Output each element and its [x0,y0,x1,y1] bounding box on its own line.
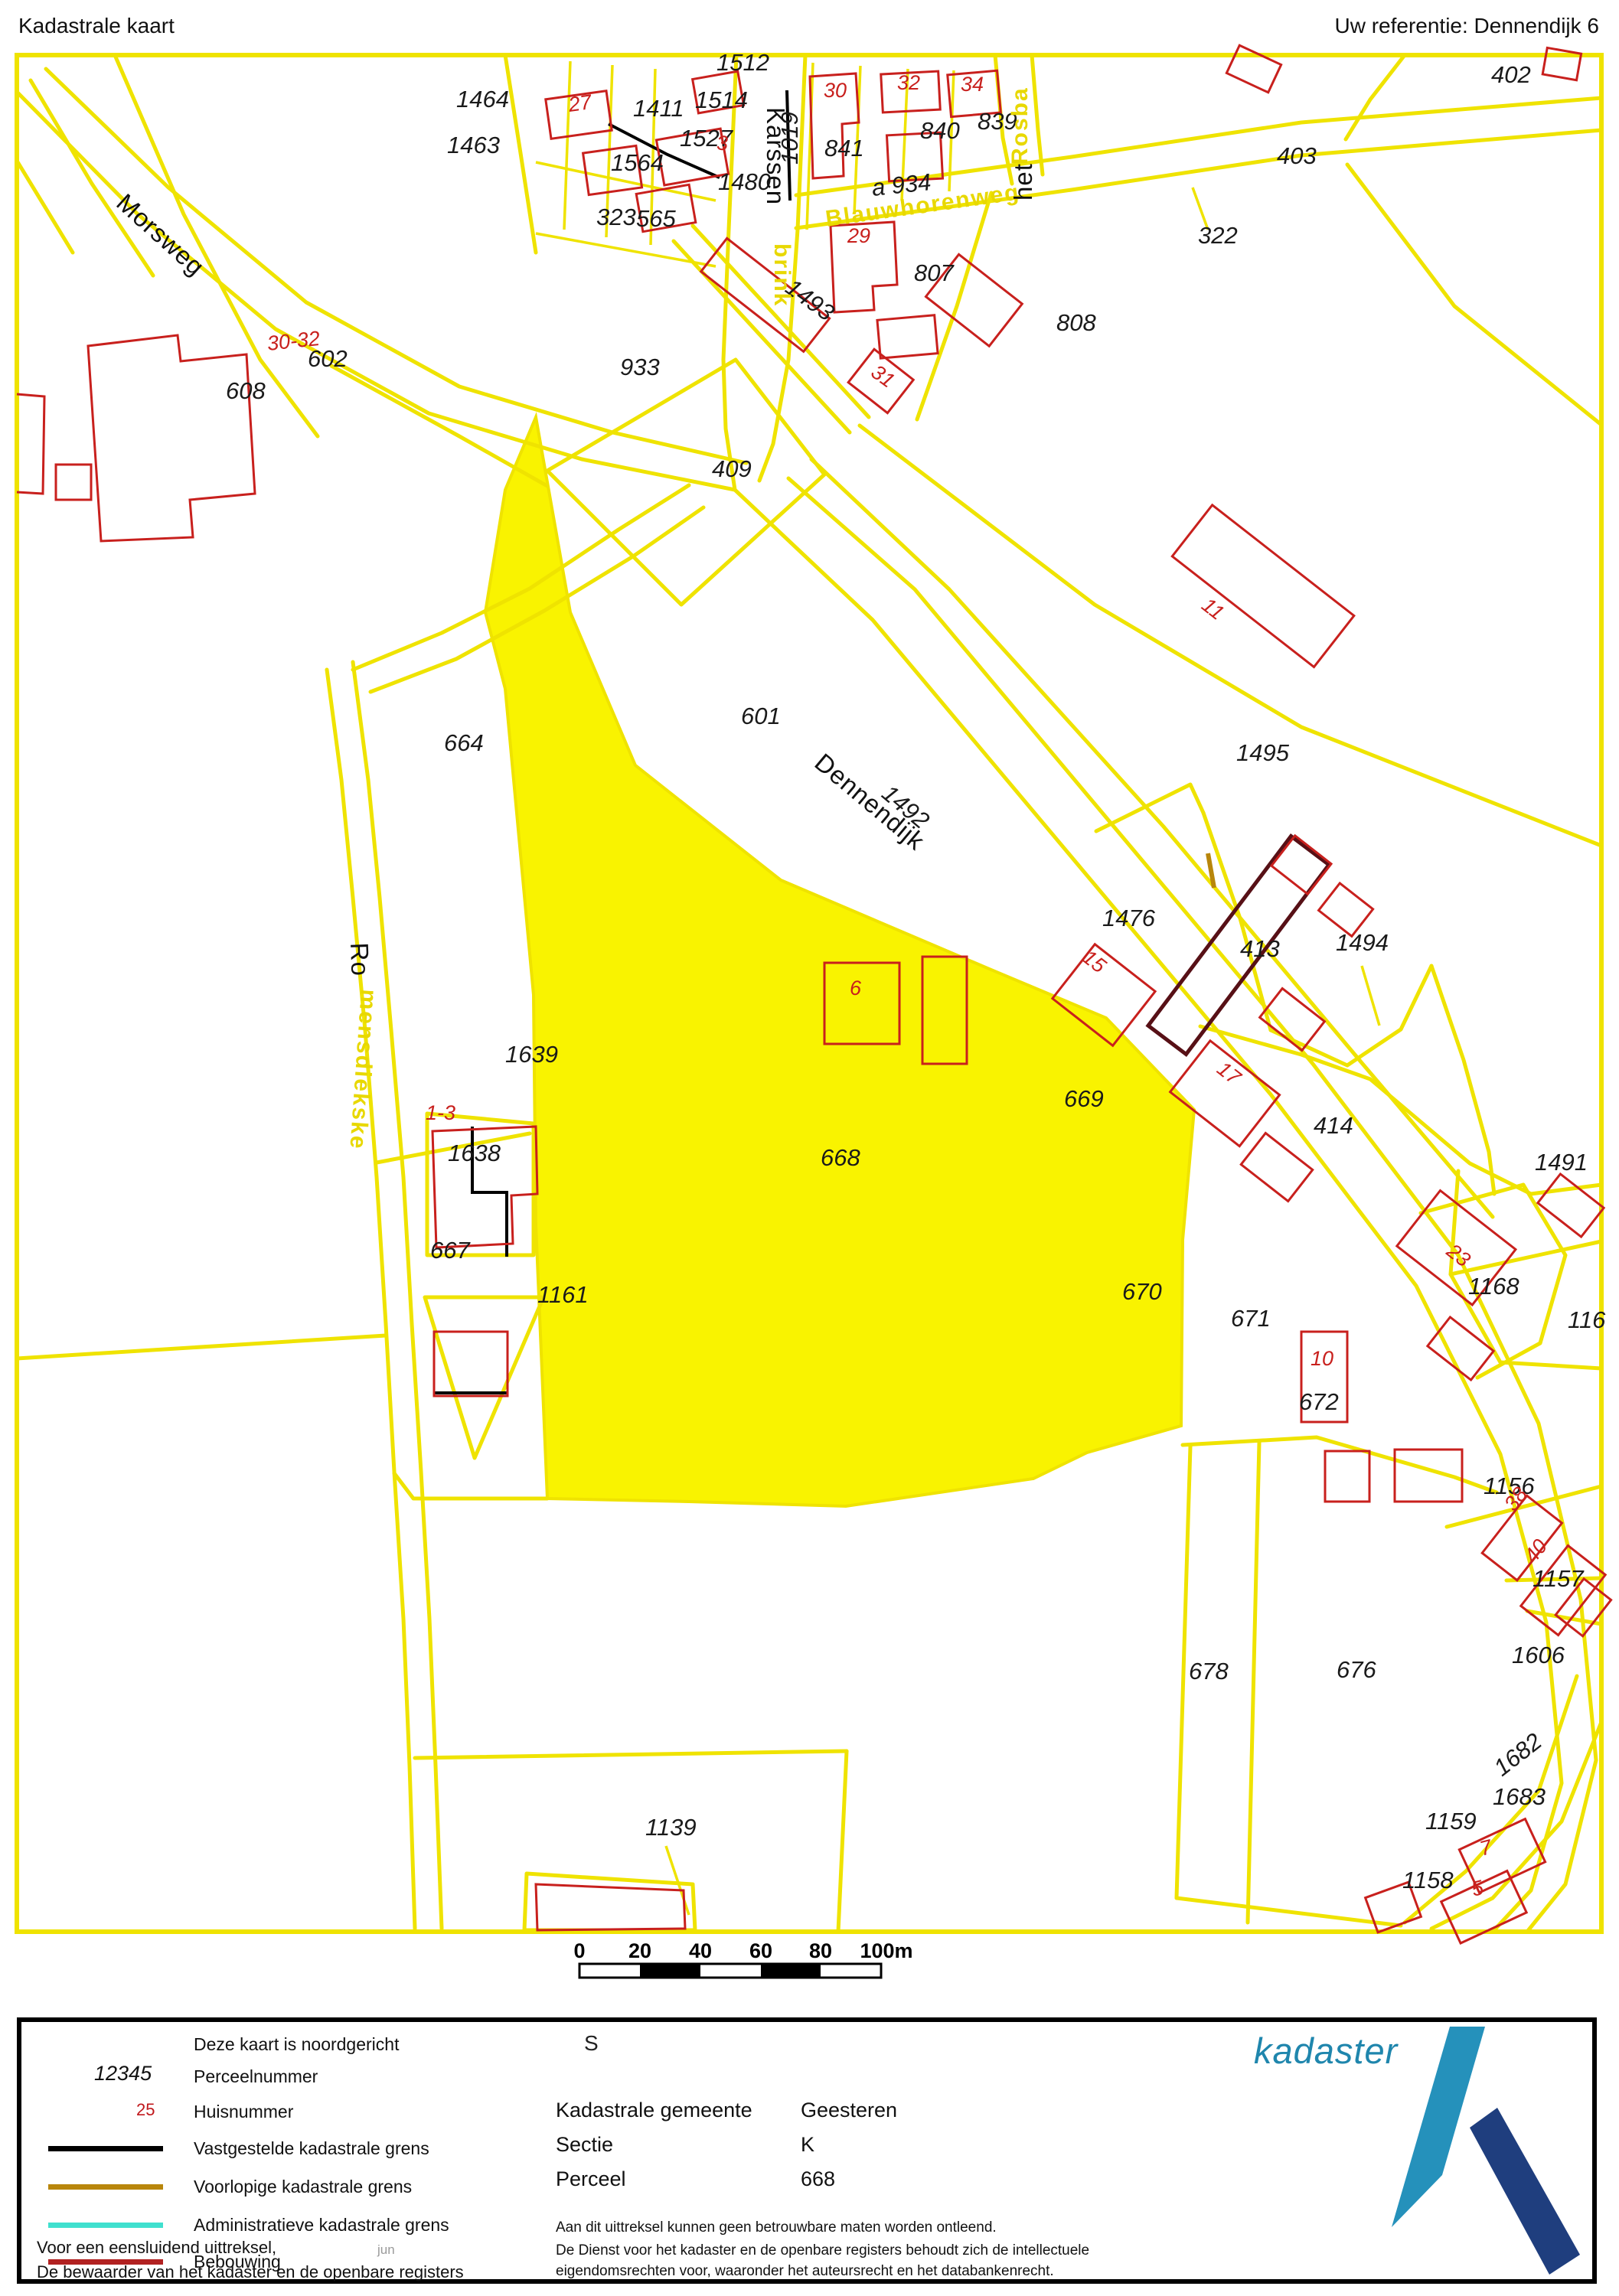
parcel-number-label: 672 [1299,1388,1339,1415]
parcel-number-label: 601 [741,703,781,729]
parcel-number-label: 840 [920,117,960,144]
house-number-label: 30 [824,79,847,102]
parcel-number-label: 1161 [537,1281,589,1308]
house-number-label: 32 [897,71,920,94]
road-name-label-yellow: mensdiekske [344,989,381,1151]
parcel-number-label: 669 [1064,1085,1104,1112]
parcel-number-label: 1159 [1425,1808,1477,1835]
parcel-number-label: 1491 [1535,1149,1588,1176]
house-number-label: 17 [1213,1057,1245,1090]
house-number-label: 10 [1311,1347,1333,1370]
road-name-label: Karssen [762,107,790,205]
house-number-label: 27 [566,90,594,116]
partial-scale-text: S [584,2031,599,2056]
kadastrale-kaart-page: Kadastrale kaart Uw referentie: Dennendi… [0,0,1619,2296]
house-number-label: 1-3 [426,1101,455,1124]
parcel-number-label: 676 [1337,1656,1376,1683]
legend-established-label: Vastgestelde kadastrale grens [194,2138,429,2159]
legend-provisional-label: Voorlopige kadastrale grens [194,2177,412,2197]
road-name-label-yellow: Rosba [1007,86,1033,165]
parcel-number-label: 1639 [505,1041,558,1068]
legend-administrative-label: Administratieve kadastrale grens [194,2215,449,2236]
parcel-number-label: 403 [1277,142,1317,169]
house-number-label: 5 [1469,1876,1487,1901]
house-number-label: 6 [850,977,862,1000]
parcel-number-label: 409 [712,455,752,482]
parcel-number-label: 1606 [1512,1642,1565,1668]
legend-house-number-label: Huisnummer [194,2102,293,2122]
attest-line-1: Voor een eensluidend uittreksel, [37,2238,276,2258]
parcel-number-label: 1157 [1533,1565,1585,1592]
parcel-number-label: 323 [596,204,636,230]
legend-line-administrative [48,2223,163,2228]
parcel-number-label: 608 [226,377,266,404]
parcel-number-label: 1564 [611,149,664,176]
scalebar-tick-label: 40 [689,1939,712,1962]
parcel-number-label: 1463 [447,132,500,158]
parcel-number-label: 116 [1568,1306,1606,1333]
house-number-label: 3 [716,132,728,155]
parcel-number-label: 402 [1491,61,1531,88]
parcel-number-label: 664 [444,729,484,756]
house-number-label: 23 [1442,1238,1475,1271]
parcel-number-label: 1476 [1102,905,1156,931]
info-sectie-label: Sectie [556,2133,613,2157]
legend-house-number-sample: 25 [136,2100,155,2120]
parcel-number-label: 413 [1240,935,1280,962]
legend-parcel-number-sample: 12345 [94,2062,152,2086]
road-name-label: het [1009,163,1037,201]
parcel-number-label: 807 [914,259,955,286]
parcel-number-label: 414 [1314,1112,1353,1139]
scalebar-tick-label: 100m [860,1939,912,1962]
parcel-number-label: 671 [1231,1305,1271,1332]
parcel-number-label: 670 [1122,1278,1162,1305]
disclaimer-line-3: eigendomsrechten voor, waaronder het aut… [556,2263,1054,2280]
parcel-number-label: 322 [1198,222,1238,249]
parcel-number-label: 565 [636,205,676,232]
scalebar-tick-label: 60 [749,1939,772,1962]
info-perceel-label: Perceel [556,2167,626,2191]
info-perceel-value: 668 [801,2167,835,2191]
disclaimer-line-2: De Dienst voor het kadaster en de openba… [556,2242,1089,2259]
scalebar-tick-label: 20 [628,1939,651,1962]
north-note: Deze kaart is noordgericht [194,2034,399,2055]
parcel-number-label: 1514 [695,86,748,113]
legend-line-provisional [48,2184,163,2190]
parcel-number-label: 1464 [456,86,509,113]
parcel-number-label: 668 [821,1144,860,1171]
parcel-number-label: 841 [824,135,864,161]
parcel-number-label: 1683 [1493,1783,1546,1810]
scalebar-tick-label: 0 [573,1939,585,1962]
legend-line-established [48,2146,163,2151]
attest-partial-text: jun [377,2242,395,2258]
parcel-number-label: 1168 [1468,1273,1519,1300]
parcel-number-label: 1638 [448,1140,501,1166]
parcel-number-label: 1411 [633,95,684,122]
disclaimer-line-1: Aan dit uittreksel kunnen geen betrouwba… [556,2219,997,2236]
attest-line-2: De bewaarder van het kadaster en de open… [37,2262,464,2282]
road-name-label-yellow: brink [769,243,795,307]
logo-dark-stroke [1470,2108,1580,2275]
parcel-number-label: 808 [1056,309,1096,336]
road-name-label: Ro [345,942,375,977]
parcel-number-label: 678 [1189,1658,1229,1684]
parcel-number-label: 1158 [1402,1867,1454,1893]
parcel-number-label: 1512 [716,49,769,76]
parcel-number-label: 1495 [1236,739,1290,766]
info-gemeente-label: Kadastrale gemeente [556,2099,752,2122]
scale-bar [579,1964,881,1978]
house-number-label: 34 [961,73,984,96]
parcel-number-label: 933 [620,354,660,380]
cadastral-map-canvas: 1512146414631411151415271564148032356584… [0,0,1619,2296]
parcel-number-label: 667 [430,1237,471,1264]
parcel-number-label: 1494 [1336,929,1389,956]
info-gemeente-value: Geesteren [801,2099,897,2122]
kadaster-logo-mark [1376,2022,1598,2279]
parcel-number-label: 1682 [1489,1727,1547,1781]
info-sectie-value: K [801,2133,814,2157]
parcel-number-label: 1139 [645,1814,697,1841]
footer-panel: Deze kaart is noordgericht 12345 Perceel… [17,2017,1597,2284]
scalebar-tick-label: 80 [809,1939,832,1962]
house-number-label: 15 [1078,945,1111,978]
legend-parcel-number-label: Perceelnummer [194,2066,318,2087]
